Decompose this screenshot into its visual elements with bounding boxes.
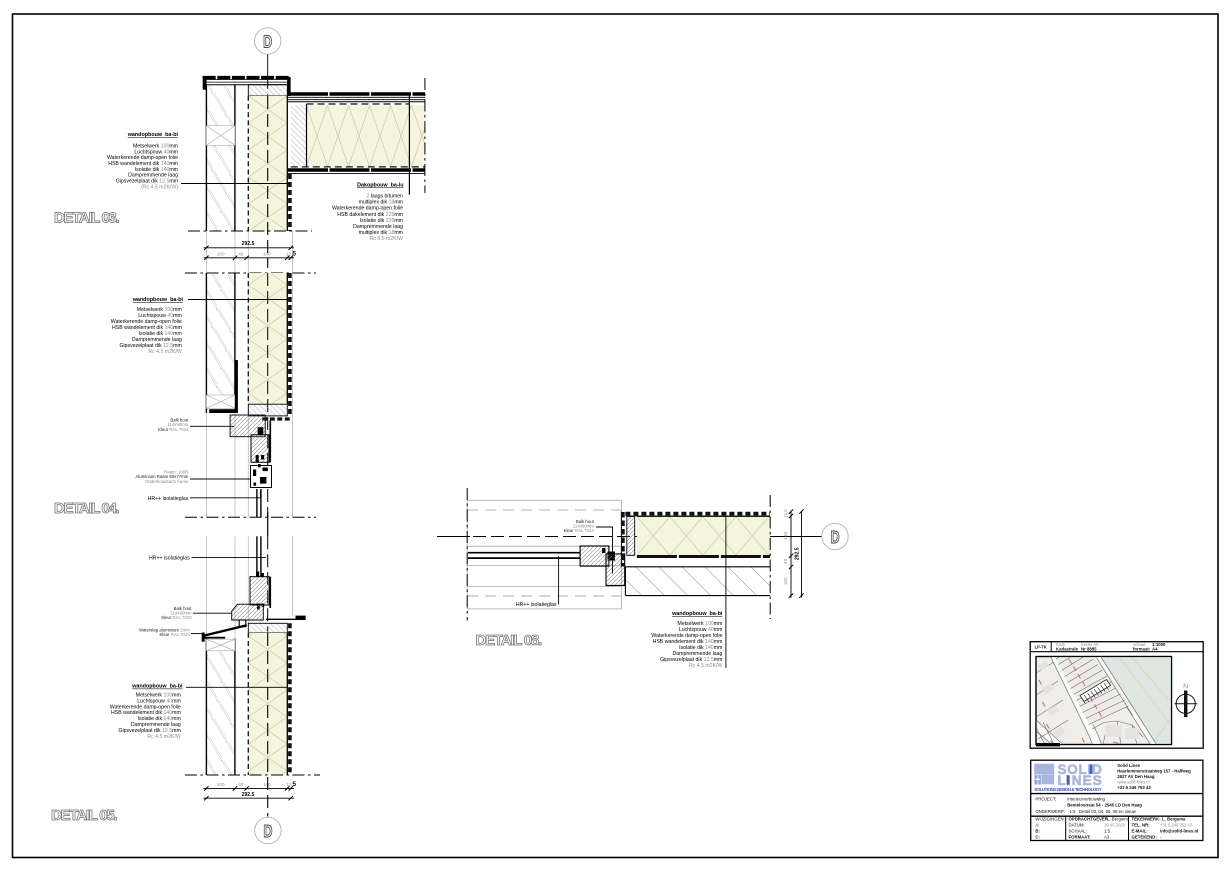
svg-text:D: D (830, 528, 839, 548)
svg-text:www.solid-lines.nl: www.solid-lines.nl (1117, 780, 1149, 785)
svg-text:40: 40 (238, 782, 244, 787)
svg-text:+31 6 246 753 43: +31 6 246 753 43 (1117, 785, 1151, 790)
svg-text:Nr 8885: Nr 8885 (1081, 647, 1097, 652)
svg-text:140: 140 (783, 532, 788, 540)
svg-text:12.5: 12.5 (286, 781, 296, 788)
svg-text:Kleur RAL 7023: Kleur RAL 7023 (160, 632, 191, 637)
svg-text:N: N (1183, 682, 1188, 691)
svg-text:Isolatie dik 225mm: Isolatie dik 225mm (360, 218, 403, 224)
svg-text:multiplex dik 18mm: multiplex dik 18mm (359, 230, 403, 236)
svg-text:PROJECT:: PROJECT: (1035, 796, 1056, 801)
svg-text:multiplex dik 18mm: multiplex dik 18mm (359, 200, 403, 206)
svg-text:HR++ isolatieglas: HR++ isolatieglas (148, 496, 189, 502)
svg-text:Dakopbouw ba-lu: Dakopbouw ba-lu (357, 183, 403, 189)
svg-text:292.5: 292.5 (242, 241, 255, 247)
svg-text:292.5: 292.5 (795, 547, 801, 560)
svg-text:wandopbouw ba-bi: wandopbouw ba-bi (132, 297, 184, 303)
svg-text:100: 100 (217, 782, 225, 787)
svg-text:FORMAAT:: FORMAAT: (1069, 835, 1092, 840)
svg-text:A3: A3 (1104, 835, 1110, 840)
svg-text:140: 140 (263, 782, 271, 787)
svg-text:DETAIL 03.: DETAIL 03. (54, 210, 120, 227)
svg-text:Onderhoudsarm frame: Onderhoudsarm frame (145, 479, 189, 484)
svg-text:HSB dakelement dik 225mm: HSB dakelement dik 225mm (337, 212, 403, 218)
svg-text:L. Bergsma: L. Bergsma (1162, 817, 1186, 822)
svg-text:Rc 4.5 m2K/W: Rc 4.5 m2K/W (147, 734, 181, 740)
svg-text:Interieurverbouwing: Interieurverbouwing (1067, 796, 1105, 801)
svg-text:A4: A4 (1152, 647, 1158, 652)
svg-text:DATUM:: DATUM: (1069, 823, 1085, 828)
svg-text:(Rc 4.5 m2K/W): (Rc 4.5 m2K/W) (141, 184, 178, 190)
svg-text:wandopbouw ba-bi: wandopbouw ba-bi (131, 684, 183, 690)
svg-text:+31 6 246 753 43: +31 6 246 753 43 (1160, 823, 1193, 828)
svg-text:140: 140 (263, 251, 271, 256)
svg-text:WIJZIGINGEN:: WIJZIGINGEN: (1035, 817, 1064, 822)
svg-text:C:: C: (1035, 835, 1040, 840)
svg-text:Kleur RAL 7023: Kleur RAL 7023 (158, 427, 189, 432)
svg-text:SCHAAL:: SCHAAL: (1069, 829, 1087, 834)
svg-text:ONDERWERP:: ONDERWERP: (1035, 809, 1065, 814)
svg-text:TEKENWERK:: TEKENWERK: (1132, 817, 1162, 822)
svg-text:info@solid-lines.nl: info@solid-lines.nl (1160, 829, 1198, 834)
svg-text:DETAIL 08.: DETAIL 08. (476, 632, 543, 649)
svg-text:DETAIL 04.: DETAIL 04. (54, 500, 120, 517)
svg-text:Solid Lines: Solid Lines (1117, 763, 1141, 768)
svg-text:Bentelostraat 54 - 2545 LD Den: Bentelostraat 54 - 2545 LD Den Haag (1067, 803, 1142, 808)
svg-text:TEL. NR:: TEL. NR: (1132, 823, 1151, 828)
svg-text:Kleur RAL 7023: Kleur RAL 7023 (564, 528, 595, 533)
svg-text:L. Bergsma: L. Bergsma (1107, 817, 1130, 822)
svg-text:12.5: 12.5 (783, 509, 788, 518)
svg-text:LINES: LINES (1058, 773, 1102, 788)
svg-text:Kadastrale: Kadastrale (1056, 647, 1079, 652)
svg-text:Rc 6.0 m2K/W: Rc 6.0 m2K/W (370, 236, 404, 242)
svg-text:292.5: 292.5 (242, 792, 255, 798)
svg-text:HR++ isolatieglas: HR++ isolatieglas (516, 602, 557, 608)
svg-text:DETAIL 05.: DETAIL 05. (51, 807, 118, 824)
svg-text:wandopbouw ba-bi: wandopbouw ba-bi (127, 132, 179, 138)
svg-text:20-05-2020: 20-05-2020 (1104, 823, 1126, 828)
svg-text:Dampremmende laag: Dampremmende laag (353, 224, 403, 230)
svg-text:SOLUTIONS DESIGN & TECHNOLOGY: SOLUTIONS DESIGN & TECHNOLOGY (1034, 787, 1102, 792)
svg-text:40: 40 (783, 558, 788, 564)
svg-text:A:: A: (1035, 823, 1039, 828)
svg-text:Rc 4.5 m2K/W: Rc 4.5 m2K/W (148, 349, 182, 355)
svg-text:D: D (263, 822, 272, 842)
svg-text:E-MAIL:: E-MAIL: (1132, 829, 1149, 834)
svg-text:40: 40 (238, 251, 244, 256)
svg-text:OPDRACHTGEVER: OPDRACHTGEVER (1069, 817, 1109, 822)
svg-text:Haarlemmerstraatweg 157 - Half: Haarlemmerstraatweg 157 - Halfweg (1117, 769, 1191, 774)
svg-text:1:5: 1:5 (1104, 829, 1111, 834)
svg-text:HR++ isolatieglas: HR++ isolatieglas (149, 556, 190, 562)
svg-text:2627 AV Den Haag: 2627 AV Den Haag (1117, 774, 1155, 779)
svg-text:D: D (263, 32, 272, 52)
svg-text:wandopbouw ba-bi: wandopbouw ba-bi (671, 611, 723, 617)
svg-text:GETEKEND:: GETEKEND: (1132, 835, 1158, 840)
svg-text:12.5: 12.5 (286, 250, 296, 257)
svg-text:Waterkerende damp-open folie: Waterkerende damp-open folie (332, 206, 403, 212)
svg-text:Kleur RAL 7023: Kleur RAL 7023 (161, 615, 192, 620)
svg-text:formaat:: formaat: (1133, 647, 1151, 652)
svg-text:LP-TK: LP-TK (1035, 644, 1047, 649)
svg-text:Rc 4.5 m2K/W: Rc 4.5 m2K/W (689, 663, 723, 669)
svg-text:2 laags bitumen: 2 laags bitumen (366, 194, 403, 200)
svg-text:100: 100 (217, 251, 225, 256)
svg-text:1:5 Detail 03, 04, 05, 08 en: 1:5 Detail 03, 04, 05, 08 en nieuw (1070, 809, 1137, 814)
svg-text:100: 100 (783, 577, 788, 585)
svg-text:B:: B: (1035, 829, 1040, 834)
